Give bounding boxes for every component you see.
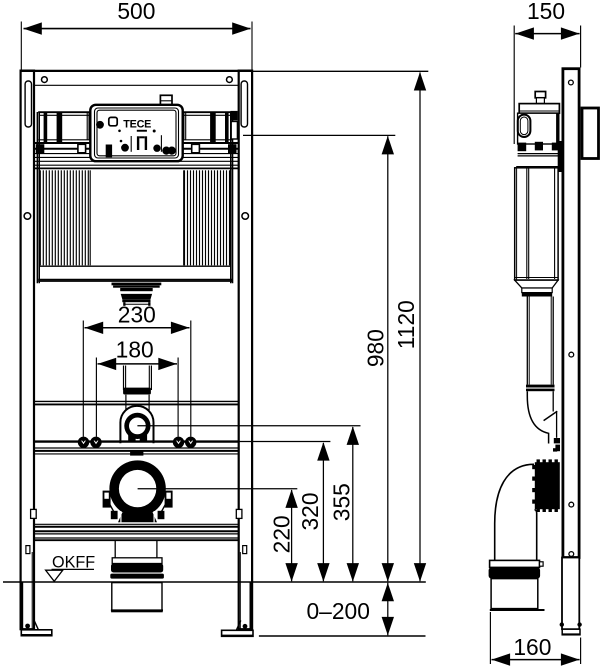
svg-text:TECE: TECE: [123, 118, 151, 130]
svg-text:220: 220: [269, 515, 295, 553]
svg-text:230: 230: [118, 301, 156, 327]
svg-text:980: 980: [362, 329, 388, 367]
svg-text:OKFF: OKFF: [52, 553, 95, 571]
svg-text:160: 160: [513, 634, 551, 660]
svg-text:355: 355: [329, 483, 355, 521]
svg-text:0–200: 0–200: [306, 598, 369, 624]
svg-text:1120: 1120: [393, 300, 419, 349]
svg-text:500: 500: [117, 0, 155, 24]
svg-text:180: 180: [116, 336, 154, 362]
svg-text:150: 150: [527, 0, 565, 24]
svg-text:320: 320: [297, 492, 323, 530]
